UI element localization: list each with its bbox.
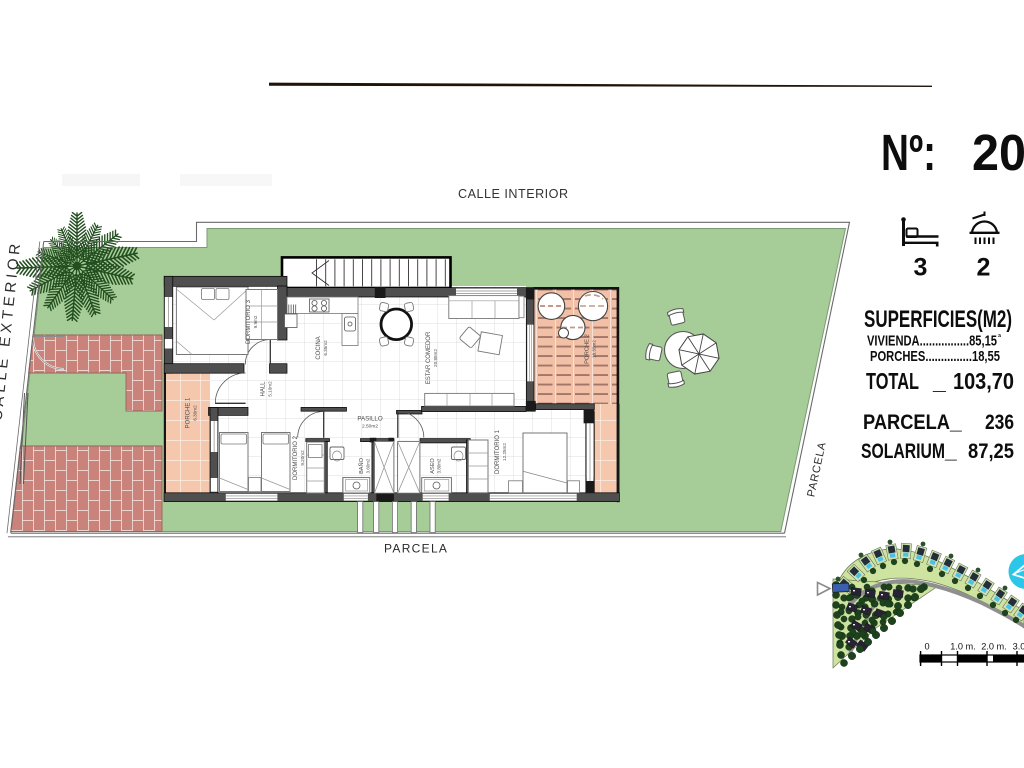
svg-text:PORCHE 2: PORCHE 2 — [585, 334, 591, 364]
svg-text:3: 3 — [914, 254, 928, 282]
svg-text:0: 0 — [924, 642, 929, 652]
svg-text:PORCHES...............18,55: PORCHES...............18,55 — [870, 348, 1000, 365]
svg-text:VIVIENDA................85,15: VIVIENDA................85,15 — [867, 333, 997, 350]
svg-text:_: _ — [949, 411, 962, 434]
svg-text:3.0: 3.0 — [1013, 642, 1024, 652]
svg-text:PARCELA: PARCELA — [863, 411, 950, 434]
svg-text:Nº:: Nº: — [881, 124, 936, 181]
svg-text:CALLE INTERIOR: CALLE INTERIOR — [458, 187, 569, 201]
svg-text:6.35m2: 6.35m2 — [323, 340, 328, 356]
svg-text:SUPERFICIES(M2): SUPERFICIES(M2) — [864, 306, 1012, 333]
svg-text:2.50m2: 2.50m2 — [362, 424, 378, 430]
svg-text:236: 236 — [985, 411, 1014, 434]
svg-text:PARCELA: PARCELA — [384, 542, 448, 556]
svg-text:2.0 m.: 2.0 m. — [981, 642, 1007, 652]
svg-text:DORMITORIO 2: DORMITORIO 2 — [293, 435, 299, 480]
svg-text:2: 2 — [977, 254, 991, 282]
svg-text:20.85m2: 20.85m2 — [433, 349, 438, 367]
svg-text:12.25m2: 12.25m2 — [502, 443, 507, 461]
svg-text:9.20m2: 9.20m2 — [300, 450, 305, 466]
svg-text:ª: ª — [998, 333, 1001, 342]
svg-text:_: _ — [932, 368, 946, 394]
svg-text:ESTAR COMEDOR: ESTAR COMEDOR — [426, 331, 432, 384]
svg-text:20: 20 — [972, 124, 1024, 181]
svg-text:BAÑO: BAÑO — [358, 457, 365, 474]
svg-text:9.9m2: 9.9m2 — [253, 315, 258, 328]
svg-text:TOTAL: TOTAL — [866, 368, 919, 394]
svg-text:ASEO: ASEO — [430, 458, 436, 474]
svg-text:6.30m2: 6.30m2 — [193, 405, 198, 421]
svg-text:PORCHE 1: PORCHE 1 — [186, 397, 192, 428]
svg-text:103,70: 103,70 — [953, 368, 1014, 394]
svg-text:87,25: 87,25 — [968, 440, 1014, 463]
svg-text:PASILLO: PASILLO — [357, 416, 383, 423]
svg-text:SOLARIUM: SOLARIUM — [861, 440, 945, 463]
svg-text:DORMITORIO 3: DORMITORIO 3 — [246, 299, 252, 344]
svg-text:3.80m2: 3.80m2 — [437, 458, 442, 473]
svg-text:_: _ — [944, 440, 957, 463]
svg-text:3.60m2: 3.60m2 — [366, 458, 371, 473]
svg-text:5.10m2: 5.10m2 — [268, 381, 273, 397]
svg-text:COCINA: COCINA — [316, 336, 322, 359]
svg-text:DORMITORIO 1: DORMITORIO 1 — [495, 429, 501, 474]
svg-text:18.55m2: 18.55m2 — [592, 340, 597, 358]
svg-text:HALL: HALL — [261, 381, 267, 397]
svg-text:1.0 m.: 1.0 m. — [950, 642, 976, 652]
